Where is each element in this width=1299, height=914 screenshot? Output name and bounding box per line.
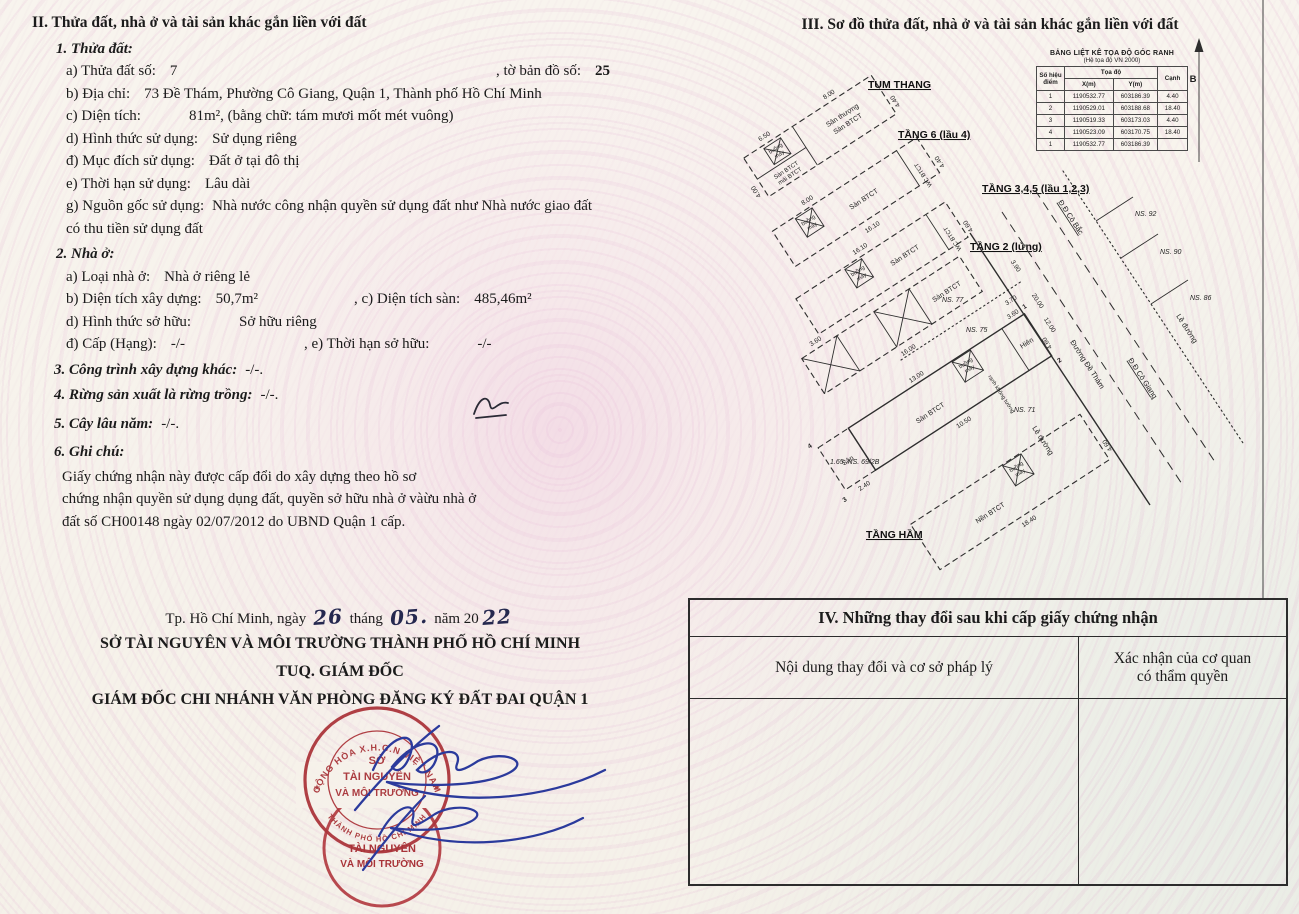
use-purpose-value: Đất ở tại đô thị bbox=[195, 153, 299, 169]
dim-1600: 16.00 bbox=[900, 343, 918, 358]
house-type-value: Nhà ở riêng lẻ bbox=[150, 269, 250, 285]
line-use-term: e) Thời hạn sử dụng:Lâu dài bbox=[66, 173, 674, 196]
changes-confirm-column: Xác nhận của cơ quan có thẩm quyền bbox=[1079, 637, 1286, 885]
dim-240: 2.40 bbox=[857, 480, 872, 493]
dim-1610: 16.10 bbox=[864, 220, 882, 235]
coord-row: 31190519.33603173.034.40 bbox=[1037, 115, 1188, 127]
label-no-wall-boundary: ranh không tường bbox=[986, 374, 1015, 414]
section-changes: IV. Những thay đổi sau khi cấp giấy chứn… bbox=[688, 598, 1288, 886]
own-term-label: , e) Thời hạn sở hữu: bbox=[304, 336, 429, 352]
coord-row: 21190529.01603188.6818.40 bbox=[1037, 103, 1188, 115]
dim-440: 4.40 bbox=[934, 154, 947, 169]
col-edge: Cạnh bbox=[1158, 67, 1188, 91]
north-arrow: B bbox=[1190, 38, 1204, 162]
use-origin-label: g) Nguồn gốc sử dụng: bbox=[66, 198, 204, 214]
handwritten-mark bbox=[468, 388, 516, 424]
note-line-3: đất số CH00148 ngày 02/07/2012 do UBND Q… bbox=[62, 511, 674, 534]
grade-label: đ) Cấp (Hạng): bbox=[66, 336, 157, 352]
note-line-1: Giấy chứng nhận này được cấp đổi do xây … bbox=[62, 466, 674, 489]
section-4-title: IV. Những thay đổi sau khi cấp giấy chứn… bbox=[690, 600, 1286, 637]
section-land-and-assets: II. Thửa đất, nhà ở và tài sản khác gắn … bbox=[32, 12, 674, 533]
date-year-label: năm 20 bbox=[434, 611, 479, 627]
line-house-type: a) Loại nhà ở:Nhà ở riêng lẻ bbox=[66, 266, 674, 289]
label-nen-btct: Nền BTCT bbox=[974, 500, 1007, 526]
floor-label-tang-345: TẦNG 3,4,5 (lầu 1,2,3) bbox=[982, 182, 1089, 195]
floor-label-tang-2: TẦNG 2 (lửng) bbox=[970, 240, 1042, 253]
neighbor-ns69: 1.65; NS. 69/2B bbox=[830, 459, 880, 466]
line-grade: đ) Cấp (Hạng):-/- , e) Thời hạn sở hữu:-… bbox=[66, 333, 674, 356]
changes-content-column: Nội dung thay đổi và cơ sở pháp lý bbox=[690, 637, 1079, 885]
coord-row: 11190532.77603186.394.40 bbox=[1037, 91, 1188, 103]
sidewalk-label: Lề đường bbox=[1174, 312, 1199, 344]
line-build-area: b) Diện tích xây dựng:50,7m² , c) Diện t… bbox=[66, 288, 674, 311]
dim-1300: 13.00 bbox=[908, 370, 926, 385]
section-2-title: II. Thửa đất, nhà ở và tài sản khác gắn … bbox=[32, 12, 674, 35]
label-porch: Hiên bbox=[1019, 337, 1035, 351]
dim-360: 3.60 bbox=[1006, 308, 1021, 321]
map-sheet-value: 25 bbox=[581, 63, 610, 79]
floor-label-tang-6: TẦNG 6 (lầu 4) bbox=[898, 128, 970, 141]
handwritten-month: 05. bbox=[386, 603, 431, 630]
floorplan-tang-2: Sàn BTCT 16.00 3.60 bbox=[796, 248, 989, 405]
build-area-value: 50,7m² bbox=[202, 291, 258, 307]
label-wc: WC BTCT bbox=[943, 225, 963, 251]
use-term-label: e) Thời hạn sử dụng: bbox=[66, 176, 191, 192]
label-san-btct: Sàn BTCT bbox=[890, 244, 922, 268]
house-type-label: a) Loại nhà ở: bbox=[66, 269, 150, 285]
notes-heading: 6. Ghi chú: bbox=[54, 441, 674, 464]
corner-point-4: 4 bbox=[807, 442, 814, 450]
north-label: B bbox=[1190, 74, 1197, 85]
neighbor-ns71: NS. 71 bbox=[1014, 407, 1036, 414]
neighbor-tick bbox=[1121, 234, 1158, 258]
dim-390: 3.90 bbox=[1009, 259, 1022, 274]
signature-block: Tp. Hồ Chí Minh, ngày 26 tháng 05. năm 2… bbox=[30, 604, 650, 712]
own-form-label: d) Hình thức sở hữu: bbox=[66, 314, 191, 330]
dim-1840: 18.40 bbox=[1021, 514, 1039, 529]
street-de-tham: Đường Đề Thám bbox=[1068, 338, 1106, 390]
neighbor-ns77: NS. 77 bbox=[942, 297, 965, 304]
line-use-purpose: đ) Mục đích sử dụng:Đất ở tại đô thị bbox=[66, 150, 674, 173]
cadastral-diagram: TUM THANG TẦNG 6 (lầu 4) TẦNG 3,4,5 (lầu… bbox=[670, 30, 1299, 595]
corner-point-1: 1 bbox=[1021, 303, 1028, 311]
parcel-number-value: 7 bbox=[156, 63, 178, 79]
dim-1610: 16.10 bbox=[852, 242, 870, 257]
floorplan-tang-6: buồng máy WC BTCT Sàn BTCT 8.00 16.10 4.… bbox=[767, 124, 955, 278]
signature-upper bbox=[355, 726, 605, 810]
signatures bbox=[345, 712, 615, 882]
col-x: X(m) bbox=[1065, 79, 1114, 91]
note-line-2: chứng nhận quyền sử dụng dụng đất, quyền… bbox=[62, 488, 674, 511]
dim-1050: 10.50 bbox=[955, 415, 973, 430]
col-y: Y(m) bbox=[1113, 79, 1157, 91]
street-dashed-line-1 bbox=[1002, 212, 1182, 484]
date-place: Tp. Hồ Chí Minh, ngày bbox=[165, 611, 306, 627]
floorplan-ground: Sân 2.40 Hiên buồng máy Sàn BTCT 13.00 1… bbox=[807, 302, 1064, 504]
address-value: 73 Đề Thám, Phường Cô Giang, Quận 1, Thà… bbox=[130, 86, 542, 102]
sidewalk-label-2: Lề đường bbox=[1030, 424, 1055, 456]
neighbor-ns86: NS. 86 bbox=[1190, 295, 1212, 302]
own-form-value: Sở hữu riêng bbox=[191, 314, 317, 330]
corner-point-2: 2 bbox=[1056, 357, 1063, 365]
coord-row: 41190523.09603170.7518.40 bbox=[1037, 127, 1188, 139]
use-form-label: d) Hình thức sử dụng: bbox=[66, 131, 198, 147]
coord-header-row: Số hiệu điểm Tọa độ Cạnh bbox=[1037, 67, 1188, 79]
forest-value: -/-. bbox=[252, 387, 278, 403]
parcel-heading: 1. Thửa đất: bbox=[56, 38, 674, 61]
build-area-label: b) Diện tích xây dựng: bbox=[66, 291, 202, 307]
changes-content-header: Nội dung thay đổi và cơ sở pháp lý bbox=[690, 637, 1078, 699]
use-purpose-label: đ) Mục đích sử dụng: bbox=[66, 153, 195, 169]
dim-440: 4.40 bbox=[889, 94, 902, 109]
floor-area-value: 485,46m² bbox=[460, 291, 531, 307]
neighbor-ns75: NS. 75 bbox=[966, 327, 988, 334]
use-origin-value: Nhà nước công nhận quyền sử dụng đất như… bbox=[204, 198, 592, 214]
line-parcel-number: a) Thửa đất số:7 , tờ bản đồ số:25 bbox=[66, 60, 674, 83]
use-term-value: Lâu dài bbox=[191, 176, 250, 192]
dim-400: 4.00 bbox=[750, 184, 763, 199]
line-use-origin: g) Nguồn gốc sử dụng:Nhà nước công nhận … bbox=[66, 195, 674, 218]
page-fold-line bbox=[1262, 0, 1264, 598]
neighbor-tick bbox=[1151, 280, 1188, 304]
coordinate-table-title: BẢNG LIỆT KÊ TỌA ĐỘ GÓC RANH bbox=[1036, 50, 1188, 57]
coordinate-table: BẢNG LIỆT KÊ TỌA ĐỘ GÓC RANH (Hệ tọa độ … bbox=[1036, 50, 1188, 151]
issuing-org: SỞ TÀI NGUYÊN VÀ MÔI TRƯỜNG THÀNH PHỐ HỒ… bbox=[30, 631, 650, 656]
col-point: Số hiệu bbox=[1037, 72, 1064, 79]
date-line: Tp. Hồ Chí Minh, ngày 26 tháng 05. năm 2… bbox=[30, 604, 650, 628]
floor-area-label: , c) Diện tích sàn: bbox=[354, 291, 460, 307]
col-coords: Tọa độ bbox=[1065, 67, 1158, 79]
line-use-form: d) Hình thức sử dụng:Sử dụng riêng bbox=[66, 128, 674, 151]
dim-2000: 20.00 bbox=[1030, 292, 1045, 310]
line-own-form: d) Hình thức sở hữu:Sở hữu riêng bbox=[66, 311, 674, 334]
certificate-page: { "doc": { "s2": { "title": "II. Thửa đấ… bbox=[0, 0, 1299, 914]
label-san-btct: Sàn BTCT bbox=[848, 188, 880, 212]
line-use-origin-2: có thu tiền sử dụng đất bbox=[66, 218, 674, 241]
own-term-value: -/- bbox=[429, 336, 491, 352]
floorplan-tang-345: buồng máy WC BTCT Sàn BTCT 16.10 4.60 bbox=[790, 188, 980, 340]
area-words: , (bằng chữ: tám mươi mốt mét vuông) bbox=[220, 108, 453, 124]
signature-lower bbox=[363, 796, 583, 870]
address-label: b) Địa chỉ: bbox=[66, 86, 130, 102]
use-origin-value-2: có thu tiền sử dụng đất bbox=[66, 221, 203, 237]
handwritten-day: 26 bbox=[309, 604, 346, 630]
line-other-works: 3. Công trình xây dựng khác:-/-. bbox=[54, 359, 674, 382]
grade-value: -/- bbox=[157, 336, 185, 352]
house-heading: 2. Nhà ở: bbox=[56, 243, 674, 266]
label-san-btct: Sàn BTCT bbox=[915, 401, 947, 425]
parcel-number-label: a) Thửa đất số: bbox=[66, 63, 156, 79]
changes-content-cell bbox=[690, 699, 1078, 885]
signer-title: TUQ. GIÁM ĐỐC bbox=[30, 659, 650, 684]
street-co-giang: Đ.Đ Cô Giang bbox=[1126, 356, 1159, 400]
area-value: 81m² bbox=[141, 108, 220, 124]
coordinate-table-subtitle: (Hệ tọa độ VN 2000) bbox=[1036, 57, 1188, 64]
label-wc: WC BTCT bbox=[914, 161, 934, 187]
boundary-dotted-line bbox=[901, 281, 1022, 360]
dim-1200: 12.00 bbox=[1042, 316, 1057, 334]
line-forest: 4. Rừng sản xuất là rừng trồng:-/-. bbox=[54, 384, 674, 407]
floorplan-basement: buồng máy Nền BTCT 18.40 4.60 bbox=[911, 409, 1125, 580]
street-frontage-line bbox=[970, 233, 1150, 505]
coord-row: 11190532.77603186.39 bbox=[1037, 139, 1188, 151]
map-sheet-label: , tờ bản đồ số: bbox=[496, 63, 581, 79]
handwritten-year: 22 bbox=[478, 604, 515, 630]
other-works-value: -/-. bbox=[237, 362, 263, 378]
neighbor-tick bbox=[1096, 197, 1133, 221]
perennial-value: -/-. bbox=[153, 416, 179, 432]
line-area: c) Diện tích:81m², (bằng chữ: tám mươi m… bbox=[66, 105, 674, 128]
star-icon: ★ bbox=[313, 783, 320, 792]
line-perennial: 5. Cây lâu năm:-/-. bbox=[54, 413, 674, 436]
neighbor-ns92: NS. 92 bbox=[1135, 211, 1157, 218]
corner-point-3: 3 bbox=[842, 496, 849, 504]
changes-confirm-cell bbox=[1079, 699, 1286, 885]
changes-confirm-header: Xác nhận của cơ quan có thẩm quyền bbox=[1079, 637, 1286, 699]
area-label: c) Diện tích: bbox=[66, 108, 141, 124]
line-address: b) Địa chỉ:73 Đề Thám, Phường Cô Giang, … bbox=[66, 83, 674, 106]
date-month-label: tháng bbox=[350, 611, 383, 627]
neighbor-ns90: NS. 90 bbox=[1160, 249, 1182, 256]
use-form-value: Sử dụng riêng bbox=[198, 131, 297, 147]
street-co-bac: Đ.Đ Cô Bắc bbox=[1056, 198, 1085, 236]
